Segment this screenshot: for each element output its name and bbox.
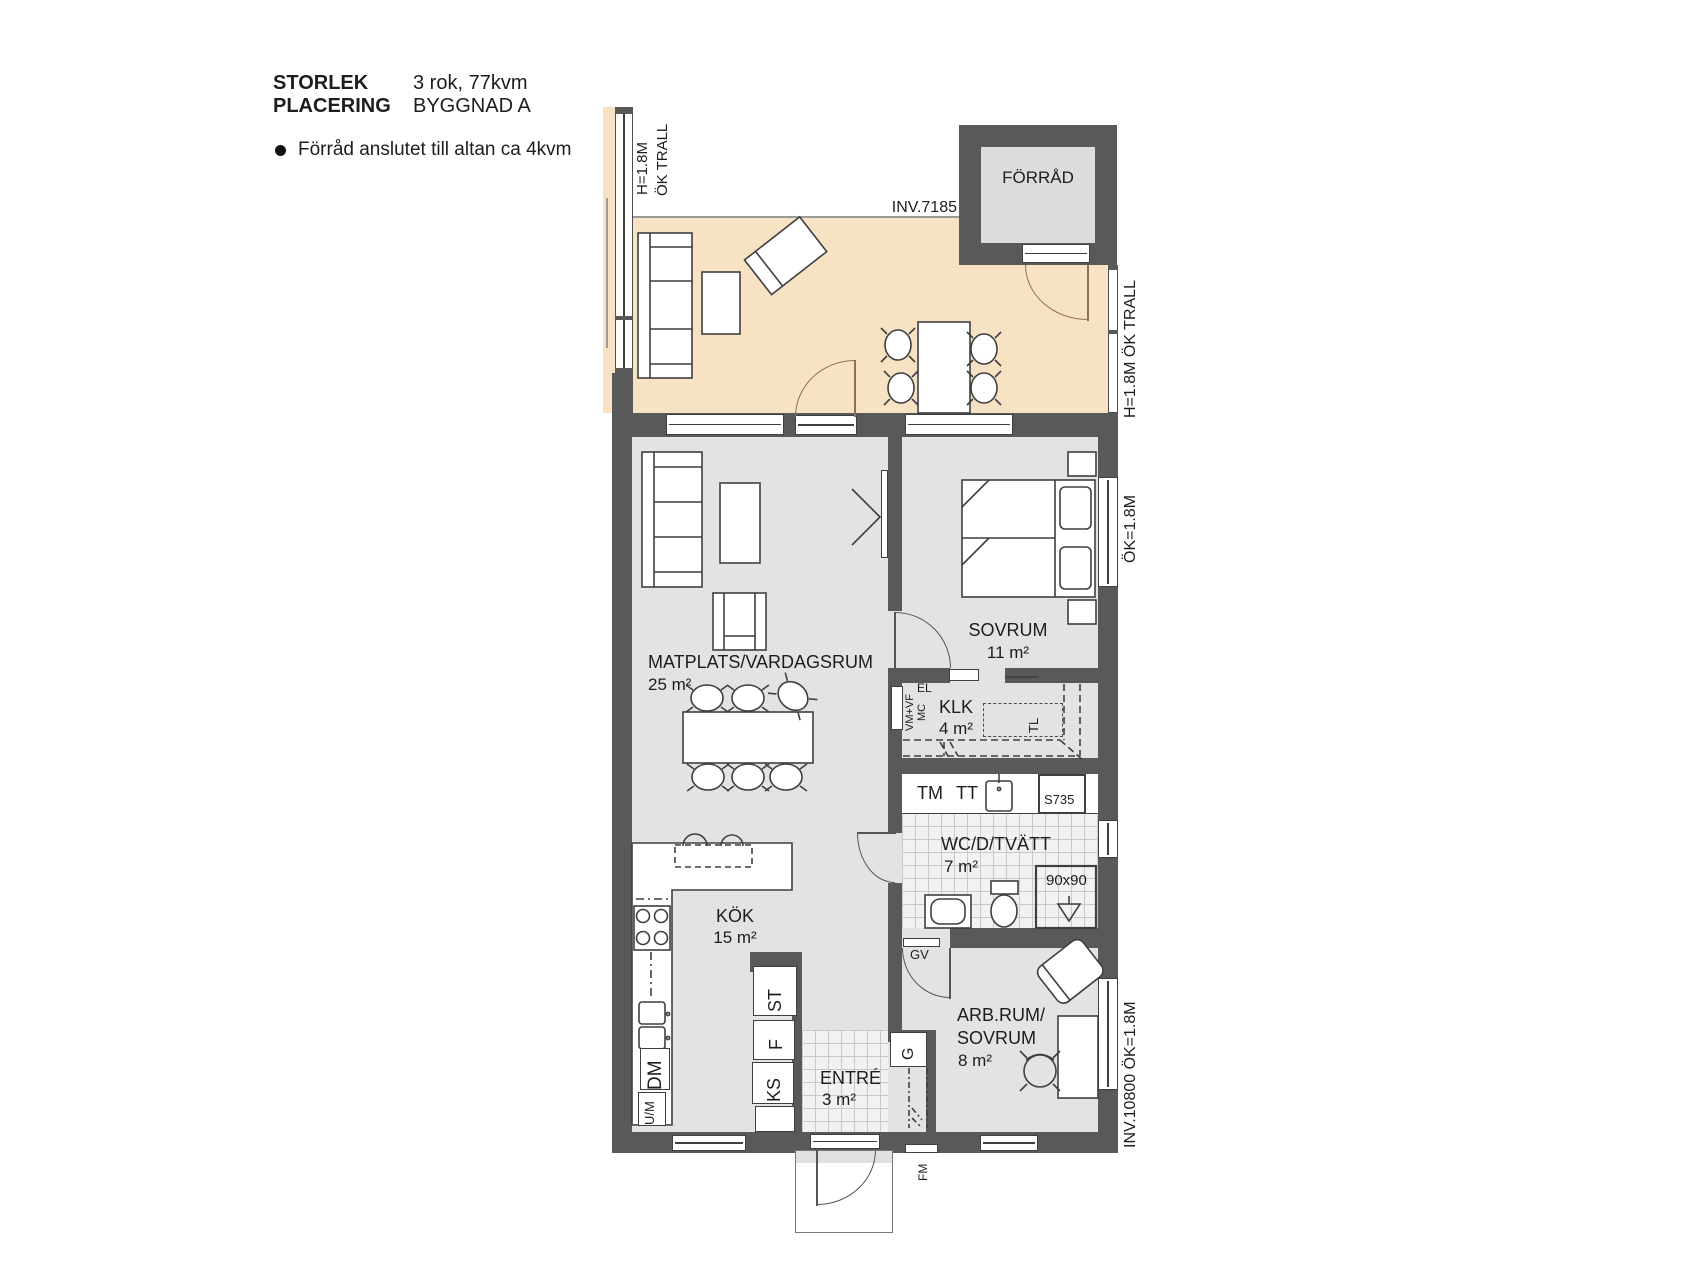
annotation-altan-right: H=1.8M ÖK TRALL [1122,268,1141,418]
wall-sovrum-klk-b [1005,668,1098,683]
annotation-tm: TM [917,783,943,804]
note-text: Förråd anslutet till altan ca 4kvm [298,139,572,161]
window-kok-bottom [672,1135,746,1151]
room-area-wc: 7 m² [944,857,978,877]
annotation-tt: TT [956,783,978,804]
terrace-screen-right [1108,265,1118,413]
terrace-screen-left [615,107,633,375]
front-door-leaf [816,1150,818,1206]
wall-hall-wc [888,883,902,1040]
screen-post [1108,330,1118,334]
annotation-shower: 90x90 [1046,872,1087,890]
wc-door-leaf [857,832,896,834]
floorplan-page: STORLEK 3 rok, 77kvm PLACERING BYGGNAD A… [0,0,1707,1280]
terrace-outer-line [606,198,608,348]
wall-corner-tl [612,373,633,415]
annotation-altan-left-2: ÖK TRALL [654,118,672,196]
room-area-matplats: 25 m² [648,675,691,695]
terrace-door-threshold [795,415,857,435]
wall-klk-wc [902,758,1098,774]
storlek-label: STORLEK [273,72,368,96]
window-wc-right [1098,820,1118,858]
terrace-door-leaf [854,360,856,417]
annotation-f: F [766,1030,787,1050]
pocket-door-panel [881,470,888,558]
annotation-sovrum-window: ÖK=1.8M [1122,487,1141,563]
window-arbrum-right [1098,978,1118,1090]
tl-hatch-box [983,703,1063,737]
screen-post [615,107,633,114]
room-label-arbrum-1: ARB.RUM/ [957,1005,1045,1026]
annotation-inv7185: INV.7185 [862,199,957,218]
room-area-klk: 4 m² [921,719,991,739]
bullet-icon [275,145,286,156]
annotation-fm: FM [916,1155,930,1181]
room-area-sovrum: 11 m² [952,643,1064,663]
annotation-um: U/M [642,1093,657,1125]
annotation-g: G [900,1040,919,1060]
room-label-klk: KLK [921,697,991,718]
window-sovrum-right [1098,477,1118,587]
room-label-forrad: FÖRRÅD [981,168,1095,188]
room-area-entre: 3 m² [822,1090,856,1110]
tech-unit-vmvf [891,686,903,730]
forrad-door-threshold [1022,244,1090,263]
annotation-ks: KS [764,1064,785,1102]
placering-label: PLACERING [273,95,391,119]
front-door-threshold [810,1134,880,1149]
wall-entre-arbrum [926,1042,936,1132]
cabinet-below-ks [755,1106,795,1132]
room-label-arbrum-2: SOVRUM [957,1028,1036,1049]
annotation-mc: MC [916,697,929,721]
sovrum-door-leaf [894,612,896,669]
room-label-sovrum: SOVRUM [952,620,1064,641]
screen-post [615,316,633,320]
wall-left [612,413,632,1153]
annotation-s735: S735 [1044,792,1074,807]
arbrum-door-leaf [949,948,951,999]
gv-box [903,938,940,947]
placering-value: BYGGNAD A [413,95,531,119]
room-label-entre: ENTRÉ [820,1068,881,1089]
annotation-altan-left-1: H=1.8M [634,125,652,195]
annotation-tl: TL [1026,705,1041,733]
fm-box [905,1144,938,1153]
screen-post [1108,265,1118,270]
wall-living-sovrum [888,437,902,611]
window-living-terrace [666,414,784,435]
room-area-arbrum: 8 m² [958,1051,992,1071]
room-label-matplats: MATPLATS/VARDAGSRUM [648,652,873,673]
terrace-deck [633,218,959,413]
annotation-gv: GV [910,947,929,962]
klk-sliding-panel [949,669,979,681]
room-label-wc: WC/D/TVÄTT [941,834,1051,855]
wall-wc-arbrum [950,928,1098,948]
annotation-arbrum-window: INV.10800 ÖK=1.8M [1122,1002,1141,1148]
storlek-value: 3 rok, 77kvm [413,72,527,96]
annotation-el: EL [917,681,932,695]
window-sovrum-terrace [905,414,1013,435]
forrad-door-leaf [1087,265,1089,321]
window-arbrum-bottom [980,1135,1038,1151]
annotation-st: ST [765,972,786,1012]
room-label-kok: KÖK [698,906,772,927]
forrad-floor [981,147,1095,243]
room-area-kok: 15 m² [698,928,772,948]
annotation-dm: DM [645,1050,667,1090]
